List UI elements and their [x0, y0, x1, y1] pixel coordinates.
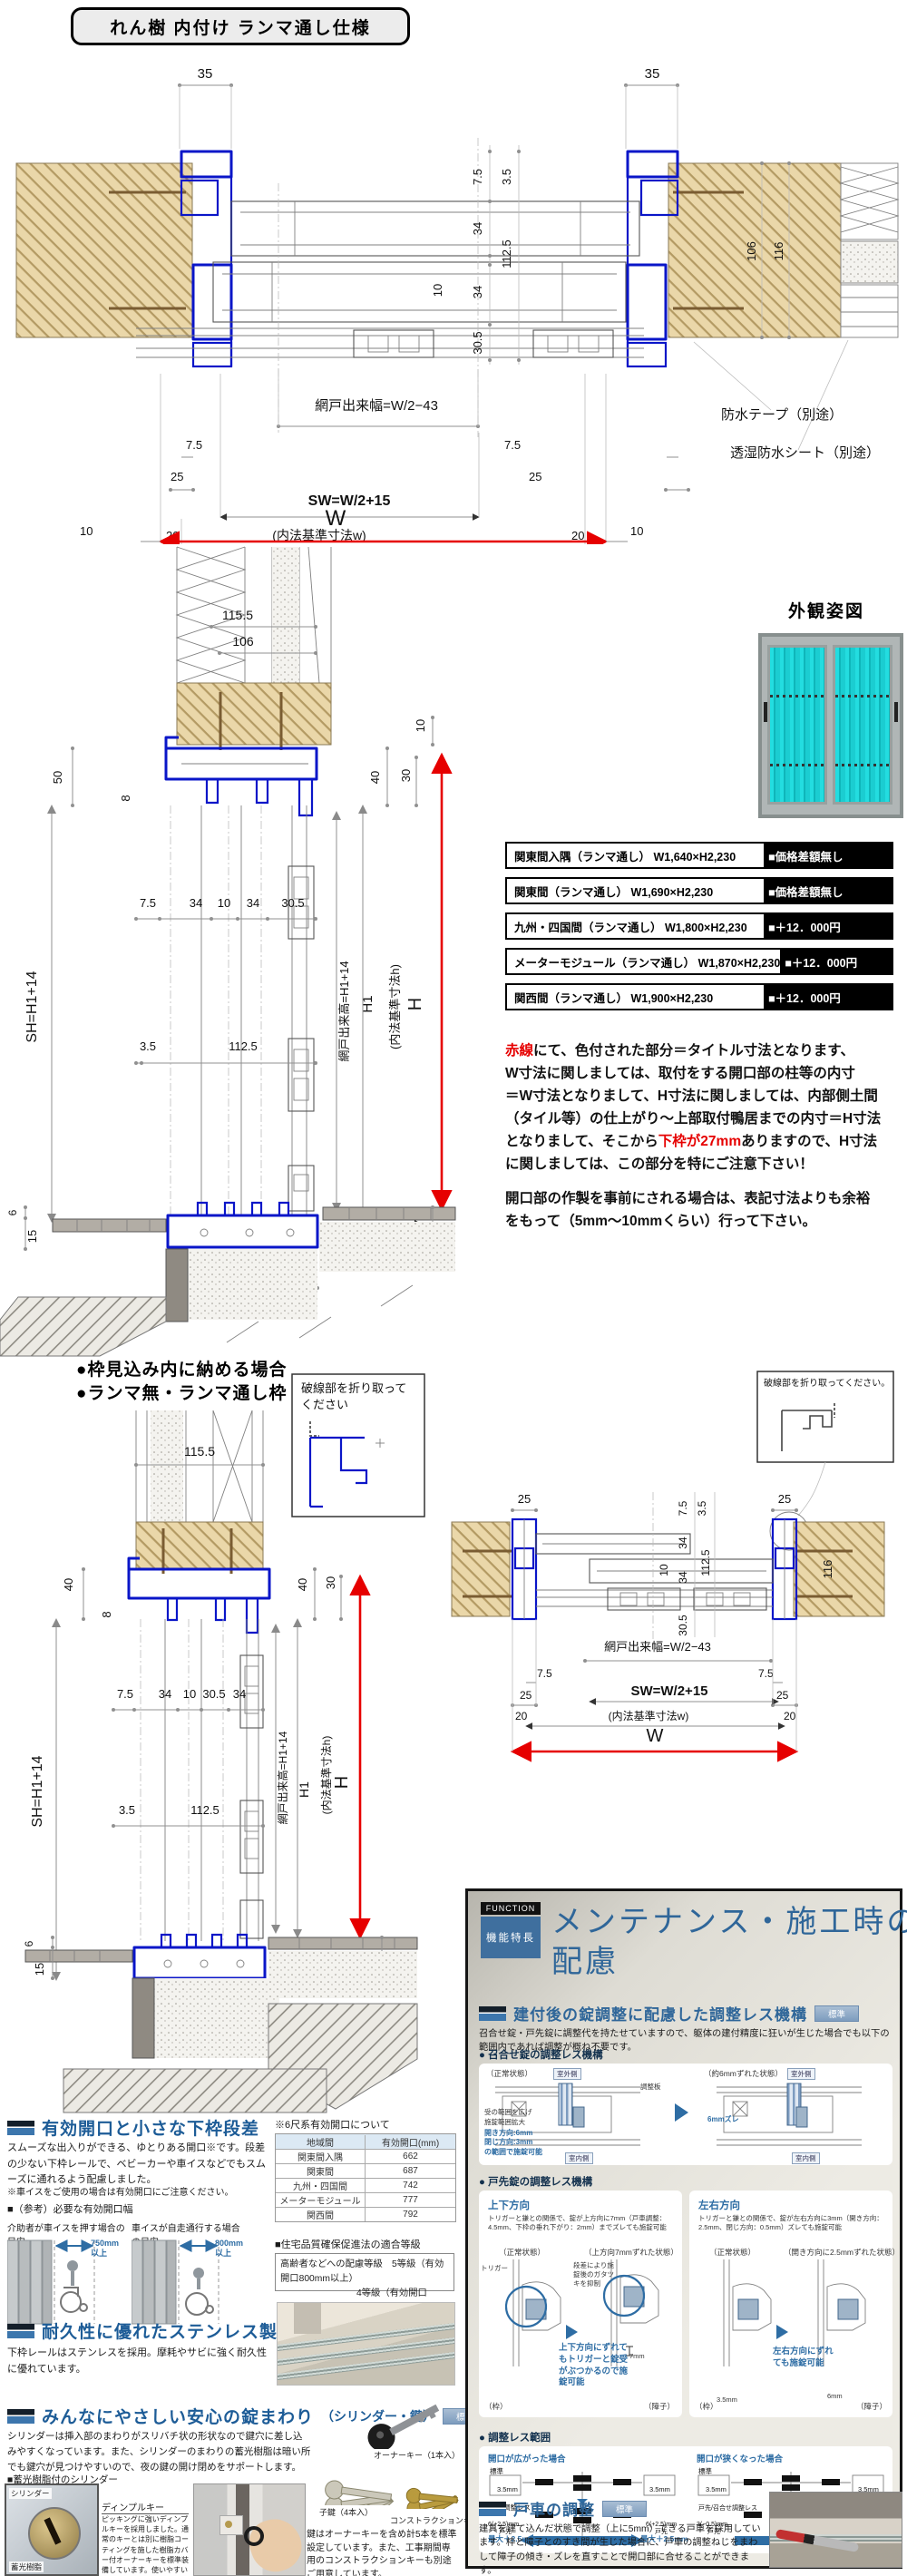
shift-label: 6mmズレ — [707, 2114, 739, 2124]
dim-small: 3.5mm — [706, 2485, 727, 2493]
label-waterproof-tape: 防水テープ（別途） — [721, 407, 843, 423]
standard-badge: 標準 — [814, 2005, 859, 2022]
dim-small: 3.5mm — [649, 2485, 670, 2493]
inside-badge: 室内側 — [792, 2152, 820, 2164]
key-head — [244, 2526, 264, 2546]
dim-label: 10 — [80, 524, 93, 538]
vertical-section-inset-drawing: 破線部を折り取って ください 115.5 40 8 40 30 — [0, 1356, 453, 2122]
section-body: スムーズな出入りができる、ゆとりある開口※です。段差の少ない下枠レールで、ベビー… — [7, 2141, 272, 2189]
door-handle-left — [764, 702, 767, 722]
panel-title: 左右方向 — [698, 2198, 740, 2212]
child-keys-image — [307, 2445, 411, 2505]
price-size-label: 関西間（ランマ通し） W1,900×H2,230 — [507, 985, 764, 1009]
leftright-panel: 左右方向 トリガーと鎌との関係で、錠が左右方向に3mm（開き方向：2.5mm、閉… — [689, 2191, 892, 2417]
catalog-page: れん樹 内付け ランマ通し仕様 — [0, 0, 907, 2576]
price-value: ■＋12．000円 — [764, 985, 892, 1009]
section-effective-opening: 有効開口と小さな下枠段差 — [7, 2115, 259, 2140]
wall-top — [136, 1410, 263, 1522]
ground — [63, 1951, 417, 2113]
door-panels — [141, 1619, 263, 1941]
dim-label: 3.5 — [140, 1039, 156, 1053]
range-title: 開口が狭くなった場合 — [697, 2452, 783, 2464]
dim-label: 112.5 — [190, 1803, 219, 1817]
dim-label: 3.5 — [696, 1500, 708, 1516]
dim-label: 112.5 — [699, 1549, 712, 1576]
head-frame-blue — [129, 1558, 269, 1633]
appearance-door-figure — [758, 633, 903, 818]
updown-panel: 上下方向 トリガーと鎌との関係で、錠が上方向に7mm（戸車調整：4.5mm、下枠… — [479, 2191, 682, 2417]
key-cylinder-dot — [225, 2521, 232, 2528]
table-row: 関東間687 — [276, 2163, 455, 2178]
dim-label: 網戸出来幅=W/2−43 — [315, 398, 438, 414]
function-title-line2: 配慮 — [551, 1937, 619, 1981]
panel-title: 上下方向 — [488, 2198, 530, 2212]
function-category-tag: 機能特長 — [481, 1917, 541, 1958]
dim-label: W — [647, 1726, 664, 1746]
price-value: ■価格差額無し — [764, 879, 892, 903]
fold-note-box: 破線部を折り取って ください — [292, 1374, 424, 1517]
direction-note: 開き方向:6mm閉じ方向:3mmの範囲で施錠可能 — [484, 2129, 542, 2157]
dim-label: 10 — [414, 719, 427, 732]
outside-badge: 室外側 — [787, 2068, 815, 2080]
dim-small: 7mm — [629, 2352, 645, 2360]
dim-label: 34 — [233, 1687, 246, 1701]
plan-section-inset-drawing: 破線部を折り取ってください。 116 25 — [426, 1356, 907, 1764]
shoji-label: （障子） — [644, 2401, 675, 2412]
blue-note: 上下方向にずれてもトリガーと錠受がぶつかるので施錠可能 — [559, 2343, 633, 2389]
child-keys-label: 子鍵（4本入） — [319, 2506, 373, 2518]
dim-label: 10 — [658, 1564, 670, 1576]
dim-label: 7.5 — [504, 438, 521, 452]
dim-label: 34 — [471, 286, 484, 298]
dim-label: 25 — [518, 1492, 531, 1506]
heading-text: 戸車の調整 — [513, 2497, 595, 2520]
heading-body: 建具を建て込んだ状態で調整（上に5mm）できる戸車を採用しています。枠と障子との… — [479, 2522, 762, 2576]
dim-label: 10 — [630, 524, 643, 538]
dim-label: 10 — [431, 284, 444, 297]
table-header: 地域間有効開口(mm) — [276, 2134, 455, 2149]
plate-label: 調整板 — [640, 2082, 661, 2092]
construction-keys-image — [397, 2454, 465, 2509]
key-insert-photo — [193, 2483, 306, 2576]
state-label: （正常状態） — [709, 2247, 756, 2258]
section-title: みんなにやさしい安心の錠まわり — [42, 2404, 314, 2428]
dim-label: SH=H1+14 — [30, 1755, 45, 1827]
wheelchair-assist-illustration — [7, 2237, 98, 2327]
dim-label: 15 — [25, 1230, 39, 1243]
dim-label: 35 — [198, 66, 213, 82]
heading-adjustless: 建付後の錠調整に配慮した調整レス機構 標準 — [479, 2002, 859, 2025]
dim-label: 30 — [399, 769, 413, 782]
price-row: 関東間入隅（ランマ通し） W1,640×H2,230■価格差額無し — [505, 842, 893, 869]
dim-label: 7.5 — [537, 1667, 552, 1680]
dim-label: 30.5 — [677, 1615, 689, 1636]
table-row: 九州・四国間742 — [276, 2178, 455, 2192]
opening-table: 地域間有効開口(mm) 関東間入隅662 関東間687 九州・四国間742 メー… — [275, 2133, 456, 2222]
dim-label: H1 — [297, 1781, 311, 1798]
dim-label: 30.5 — [281, 896, 304, 910]
wheelchair-self-illustration — [132, 2237, 222, 2327]
sliding-panels — [536, 1492, 773, 1646]
note-line: 赤線にて、色付された部分＝タイトル寸法となります、 — [505, 1039, 906, 1062]
roller-adjust-photo — [769, 2492, 902, 2568]
section-note: ※車イスをご使用の場合は有効開口にご注意ください。 — [7, 2184, 234, 2198]
dim-label: 10 — [183, 1687, 196, 1701]
price-size-label: 関東間入隅（ランマ通し） W1,640×H2,230 — [507, 844, 764, 867]
range-note: 受の範囲を広げ施錠範囲拡大 — [484, 2107, 541, 2127]
dim-label: (内法基準寸法h) — [319, 1736, 333, 1815]
state-label: （上方向7mmずれた状態） — [584, 2247, 678, 2258]
frame-right-blue — [773, 1519, 796, 1619]
dim-label: 30 — [324, 1576, 337, 1589]
table-row: 関西間792 — [276, 2207, 455, 2221]
door-corner — [294, 2303, 321, 2334]
dim-label: 50 — [51, 771, 64, 784]
edge-lock-diagram — [702, 2259, 782, 2366]
note-line: をもって（5mm～10mmくらい）行って下さい。 — [505, 1210, 906, 1233]
dim-label: 網戸出来高=H1+14 — [337, 961, 351, 1061]
fold-note-text: ください — [301, 1398, 348, 1411]
price-row: メーターモジュール（ランマ通し） W1,870×H2,230■＋12．000円 — [505, 948, 893, 975]
note-line: となりまして、そこから下枠が27mmありますので、H寸法 — [505, 1130, 906, 1153]
price-size-label: 関東間（ランマ通し） W1,690×H2,230 — [507, 879, 764, 903]
sliding-panels — [136, 138, 644, 437]
wall-left — [452, 1522, 513, 1616]
dim-small: 6mm — [827, 2392, 843, 2400]
dim-label: 30.5 — [471, 331, 484, 354]
arrow-right-icon — [566, 2325, 578, 2339]
note-line: （タイル等）の仕上がり～上部取付鴨居までの内寸＝H寸法 — [505, 1107, 906, 1130]
dim-label: H — [405, 998, 425, 1010]
frame-label: （枠） — [484, 2401, 508, 2412]
door-handle-right — [894, 702, 898, 722]
inside-badge: 室内側 — [565, 2152, 593, 2164]
frame-label: （枠） — [695, 2401, 718, 2412]
section-bars-icon — [479, 2006, 506, 2021]
dim-small: 3.5mm — [497, 2485, 518, 2493]
dimple-key-title: ディンプルキー — [102, 2500, 189, 2514]
dim-label: 25 — [520, 1689, 532, 1702]
price-value: ■＋12．000円 — [764, 914, 892, 938]
state-label: （開き方向に2.5mmずれた状態） — [784, 2247, 900, 2258]
trigger-label: トリガー — [481, 2263, 508, 2273]
dim-label: 6 — [6, 1209, 19, 1215]
dimension-note: 赤線にて、色付された部分＝タイトル寸法となります、 W寸法に関しましては、取付を… — [505, 1039, 906, 1233]
dim-label: 116 — [772, 242, 785, 261]
dim-label: 7.5 — [140, 896, 156, 910]
wood-header — [177, 683, 331, 750]
dim-label: 網戸出来高=H1+14 — [276, 1731, 289, 1824]
resin-label: 蓄光樹脂 — [9, 2561, 44, 2572]
door-panels — [171, 805, 314, 1215]
dim-label: 7.5 — [186, 438, 202, 452]
appearance-title: 外観姿図 — [753, 598, 900, 622]
dim-label: 115.5 — [222, 608, 253, 622]
plan-section-drawing: 35 35 7.5 3.5 34 112.5 10 34 30.5 106 11… — [0, 47, 907, 544]
dim-label: H — [332, 1776, 352, 1789]
arrow-right-icon — [776, 2325, 788, 2339]
std-label: 標準 — [698, 2466, 712, 2475]
sill-blue — [134, 1935, 265, 1978]
dim-label: 34 — [471, 222, 484, 235]
vertical-section-drawing: 115.5 106 50 8 10 40 30 — [0, 540, 472, 1365]
door-pane-right — [833, 645, 892, 805]
shoji-label: （障子） — [856, 2401, 887, 2412]
section-bars-icon — [7, 2324, 34, 2338]
dim-label: 7.5 — [117, 1687, 133, 1701]
standard-badge: 標準 — [602, 2501, 647, 2517]
dim-label: 106 — [745, 241, 758, 261]
note-line: W寸法に関しましては、取付をする開口部の柱等の内寸 — [505, 1062, 906, 1085]
opening-table-title: ※6尺系有効開口について — [275, 2117, 390, 2132]
dim-label: 6 — [23, 1940, 35, 1947]
panel-body: トリガーと鎌との関係で、錠が左右方向に3mm（開き方向：2.5mm、閉じ方向：0… — [698, 2214, 883, 2232]
page-title: れん樹 内付け ランマ通し仕様 — [71, 7, 410, 45]
dim-label: 網戸出来幅=W/2−43 — [604, 1640, 711, 1654]
dim-label: 40 — [62, 1578, 75, 1591]
label: 戸先/召合せ調整レス — [698, 2503, 757, 2512]
dim-label: SW=W/2+15 — [630, 1683, 707, 1699]
price-size-label: 九州・四国間（ランマ通し） W1,800×H2,230 — [507, 914, 764, 938]
price-value: ■価格差額無し — [764, 844, 892, 867]
dim-label: 3.5 — [119, 1803, 135, 1817]
dim-label: 112.5 — [229, 1039, 258, 1053]
blue-note: 左右方向にずれても施錠可能 — [773, 2347, 836, 2370]
reference-caption: ■（参考）必要な有効開口幅 — [7, 2202, 133, 2219]
dim-label: 30.5 — [202, 1687, 225, 1701]
owner-key-image — [358, 2399, 453, 2449]
price-row: 関東間（ランマ通し） W1,690×H2,230■価格差額無し — [505, 877, 893, 904]
dim-label: 3.5 — [500, 169, 513, 185]
section-body: シリンダーは挿入部のまわりがスリバチ状の形状なので鍵穴に差し込みやすくなっていま… — [7, 2429, 311, 2474]
dim-label: 25 — [778, 1492, 791, 1506]
dim-label: 25 — [776, 1689, 789, 1702]
dim-label: 8 — [119, 795, 132, 801]
dim-small: 3.5mm — [717, 2395, 737, 2404]
dim-label: 10 — [218, 896, 230, 910]
sill-blue — [168, 1203, 317, 1247]
section-bars-icon — [7, 2121, 34, 2135]
outside-badge: 室外側 — [553, 2068, 581, 2080]
dim-label: SW=W/2+15 — [308, 493, 391, 509]
wall-right — [794, 1522, 884, 1616]
note-line: ＝W寸法となりまして、H寸法に関しましては、内部側土間 — [505, 1085, 906, 1107]
dim-label: 106 — [232, 634, 254, 649]
table-row: 関東間入隅662 — [276, 2149, 455, 2163]
section-title: 有効開口と小さな下枠段差 — [42, 2115, 259, 2140]
opening-dim: 750mm以上 — [91, 2239, 119, 2259]
section-stainless-sill: 耐久性に優れたステンレス製下枠 — [7, 2318, 314, 2343]
dim-label: 7.5 — [677, 1500, 689, 1516]
price-size-label: メーターモジュール（ランマ通し） W1,870×H2,230 — [507, 950, 780, 973]
note-line: 開口部の作製を事前にされる場合は、表記寸法よりも余裕 — [505, 1187, 906, 1210]
stainless-rail-photo — [277, 2302, 455, 2386]
dim-label: 35 — [645, 66, 660, 82]
section-bars-icon — [479, 2502, 506, 2516]
dimple-key-body: ピッキングに強いディンプルキーを採用しました。通常のキーとは別に樹脂コーティング… — [102, 2514, 190, 2576]
function-panel: FUNCTION 機能特長 メンテナンス・施工時の 配慮 建付後の錠調整に配慮し… — [465, 1888, 902, 2569]
heading-text: 建付後の錠調整に配慮した調整レス機構 — [513, 2002, 807, 2025]
wall-top — [177, 547, 331, 683]
range-title: 開口が広がった場合 — [488, 2452, 566, 2464]
dim-label: (内法基準寸法w) — [609, 1709, 689, 1722]
head-frame-blue — [166, 737, 317, 815]
cylinder-label: シリンダー — [9, 2488, 52, 2499]
section-bars-icon — [7, 2409, 34, 2424]
dim-label: 40 — [368, 771, 382, 784]
meeting-lock-diagram-panel: （正常状態） 室外側 調整板 受の範囲を広げ施錠範囲拡大 開き方向:6mm閉じ方… — [479, 2064, 892, 2165]
dim-label: 15 — [33, 1963, 46, 1976]
dim-label: 34 — [247, 896, 259, 910]
dim-label: 34 — [677, 1537, 689, 1549]
price-row: 関西間（ランマ通し） W1,900×H2,230■＋12．000円 — [505, 983, 893, 1010]
function-title-line1: メンテナンス・施工時の — [551, 1897, 907, 1941]
dim-label: W — [326, 506, 346, 531]
state-label: （正常状態） — [499, 2247, 545, 2258]
bullet-edge-lock: ● 戸先錠の調整レス機構 — [479, 2174, 592, 2189]
dim-label: 40 — [296, 1578, 309, 1591]
grade-title: ■住宅品質確保促進法の適合等級 — [275, 2237, 421, 2251]
function-tag: FUNCTION — [481, 1902, 541, 1915]
dim-label: SH=H1+14 — [24, 971, 40, 1042]
wall-left — [16, 163, 192, 337]
dim-label: 7.5 — [758, 1667, 774, 1680]
bullet-range: ● 調整レス範囲 — [479, 2430, 551, 2444]
bullet-meeting-lock: ● 召合せ錠の調整レス機構 — [479, 2047, 603, 2062]
price-value: ■＋12．000円 — [780, 950, 892, 973]
fold-note-text: 破線部を折り取ってください。 — [764, 1377, 890, 1389]
dim-label: 25 — [171, 470, 183, 483]
panel-body: トリガーと鎌との関係で、錠が上方向に7mm（戸車調整：4.5mm、下枠の垂れ下が… — [488, 2214, 673, 2232]
dim-label: 112.5 — [500, 239, 513, 268]
wood-header — [136, 1522, 263, 1574]
door-pane-left — [767, 645, 827, 805]
fold-note-text: 破線部を折り取って — [301, 1381, 406, 1395]
ground — [0, 1222, 455, 1356]
dim-label: 20 — [515, 1710, 528, 1722]
dim-label: 20 — [784, 1710, 796, 1722]
dim-label: 116 — [821, 1560, 834, 1579]
dim-label: 7.5 — [471, 169, 484, 185]
dim-label: 115.5 — [184, 1444, 215, 1459]
price-row: 九州・四国間（ランマ通し） W1,800×H2,230■＋12．000円 — [505, 912, 893, 940]
opening-dim: 800mm以上 — [215, 2239, 243, 2259]
dim-label: 34 — [677, 1571, 689, 1584]
dim-label: (内法基準寸法h) — [388, 964, 402, 1049]
frame-left-blue — [512, 1519, 536, 1619]
grade-box: 高齢者などへの配慮等級 5等級（有効開口800mm以上） 4等級（有効開口750… — [275, 2253, 454, 2291]
arrow-right-icon — [675, 2103, 688, 2122]
dimensions: 25 25 7.5 3.5 34 112.5 10 34 30.5 網戸出来幅=… — [511, 1492, 798, 1751]
std-label: 標準 — [490, 2466, 503, 2475]
state-label: （約6mmずれた状態） — [704, 2068, 783, 2079]
label-moisture-sheet: 透湿防水シート（別途） — [730, 445, 880, 461]
note-line: に関しましては、この部分を特にご注意下さい！ — [505, 1153, 906, 1176]
cylinder-photo: シリンダー 蓄光樹脂 — [5, 2483, 99, 2576]
section-title: 耐久性に優れたステンレス製下枠 — [42, 2318, 314, 2343]
section-body: 下枠レールはステンレスを採用。摩耗やサビに強く耐久性に優れています。 — [7, 2346, 272, 2377]
heading-roller: 戸車の調整 標準 — [479, 2497, 647, 2520]
dim-label: 8 — [100, 1611, 113, 1617]
table-row: メーターモジュール777 — [276, 2192, 455, 2207]
dim-label: 25 — [529, 470, 541, 483]
state-label: （正常状態） — [486, 2068, 532, 2079]
dim-label: 34 — [159, 1687, 171, 1701]
dim-label: 34 — [190, 896, 202, 910]
keys-body: 鍵はオーナーキーを含め計5本を標準設定しています。また、工事期間専用のコンストラ… — [307, 2529, 459, 2576]
